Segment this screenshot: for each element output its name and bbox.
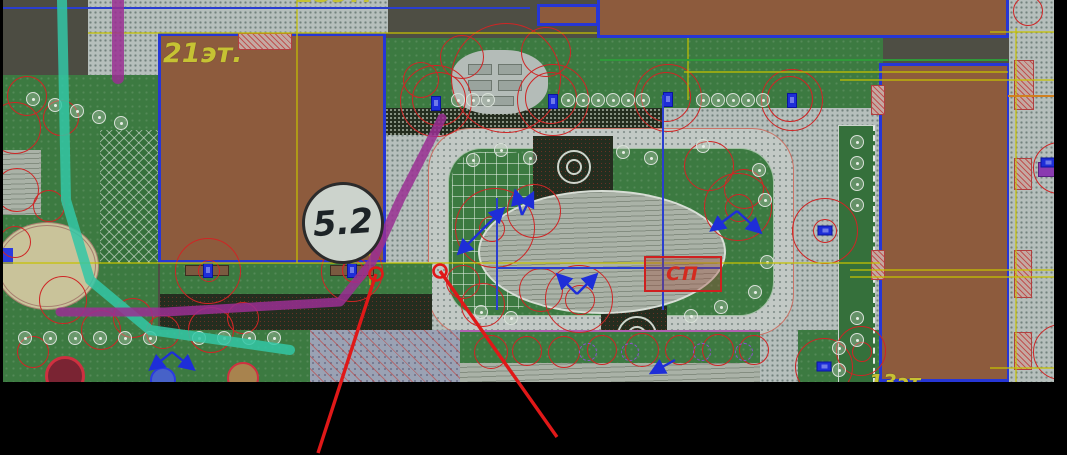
lamp-post-symbol — [818, 226, 833, 236]
lamp-post-symbol — [663, 92, 673, 107]
sp-box: СП — [644, 256, 722, 292]
lamp-post-symbol — [548, 94, 558, 109]
lamp-post-symbol — [1041, 158, 1055, 168]
building-floors-label-partial-top: 15эт. — [296, 0, 373, 9]
building-floors-label-partial-bottom: 13эт. — [869, 370, 928, 382]
sp-box-text: СП — [666, 263, 700, 285]
lamp-post-symbol — [787, 93, 797, 108]
lamp-layer — [3, 0, 1054, 382]
cad-viewport: 21эт. 15эт. 13эт. 5.2 СП — [0, 0, 1067, 455]
building-floors-label: 21эт. — [163, 38, 242, 69]
lamp-post-symbol — [347, 263, 357, 278]
area-number-text: 5.2 — [312, 201, 375, 245]
cad-drawing-canvas[interactable]: 21эт. 15эт. 13эт. 5.2 СП — [3, 0, 1054, 382]
lamp-post-symbol — [431, 96, 441, 111]
lamp-post-symbol — [817, 362, 832, 372]
lamp-post-symbol — [203, 263, 213, 278]
